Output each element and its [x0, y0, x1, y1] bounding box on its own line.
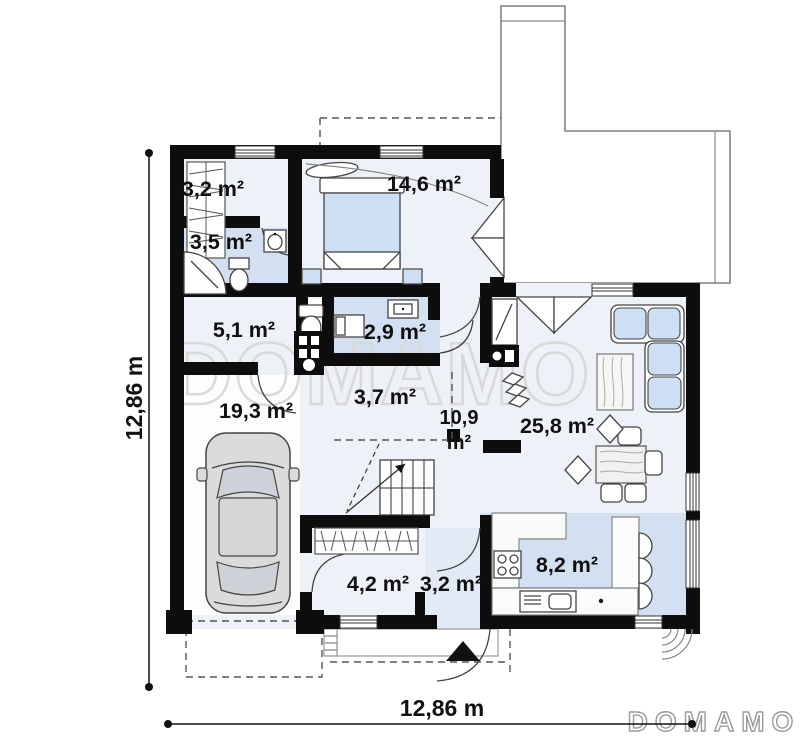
- nightstand-left: [302, 269, 321, 284]
- logo-text: DOMAMO: [628, 706, 800, 737]
- label-entry: 3,2 m²: [420, 572, 482, 596]
- dimension-left-label: 12,86 m: [121, 356, 147, 440]
- dimension-bottom: 12,86 m: [164, 695, 696, 728]
- car-roof: [219, 498, 277, 556]
- window-bottom-2: [635, 616, 662, 628]
- stove: [494, 551, 521, 578]
- sink-bathroom: [264, 230, 286, 252]
- toilet-bathroom: [229, 258, 249, 291]
- dimension-left: 12,86 m: [121, 149, 153, 691]
- car-mirror-left: [197, 468, 207, 481]
- label-bathroom: 3,5 m²: [190, 230, 252, 254]
- kitchen-bar: [612, 517, 639, 588]
- window-top-1: [235, 146, 275, 158]
- terrace-outline: [501, 6, 730, 283]
- label-living-room: 25,8 m²: [520, 414, 594, 438]
- label-wardrobe-bottom: 4,2 m²: [347, 572, 409, 596]
- window-top-2: [380, 146, 423, 158]
- kitchen-sink: [520, 591, 576, 612]
- label-kitchen: 8,2 m²: [536, 553, 598, 577]
- window-right-2: [686, 520, 699, 588]
- window-living-top: [592, 284, 633, 296]
- logo-watermark: DOMAMO: [628, 706, 800, 737]
- label-utility: 5,1 m²: [213, 318, 275, 342]
- label-garage: 19,3 m²: [219, 399, 293, 423]
- cabinet-handle: [599, 599, 603, 603]
- wardrobe-rail-bottom: [315, 528, 418, 554]
- dining-chair: [625, 484, 646, 502]
- dining-chair: [645, 451, 662, 475]
- floor-plan-drawing: DOMAMO: [0, 0, 800, 738]
- porch: [324, 629, 510, 677]
- label-bedroom: 14,6 m²: [387, 172, 461, 196]
- label-hallway-value: 10,9: [440, 407, 479, 429]
- rug: [597, 354, 633, 410]
- chimney-block: [294, 331, 324, 375]
- window-bottom-1: [340, 616, 377, 628]
- car-mirror-right: [289, 468, 299, 481]
- window-right-1: [686, 473, 699, 511]
- sink-wc: [388, 300, 418, 318]
- fireplace: [489, 299, 519, 367]
- floor-plan: DOMAMO: [0, 0, 800, 738]
- roof-overhang-dashed: [320, 118, 501, 146]
- car: [197, 433, 299, 613]
- label-wc: 2,9 m²: [364, 320, 426, 344]
- label-wardrobe-top: 3,2 m²: [182, 177, 244, 201]
- label-hallway-unit: m²: [447, 432, 472, 454]
- nightstand-right: [403, 269, 422, 284]
- washer-wc: [334, 315, 364, 337]
- dimension-bottom-label: 12,86 m: [400, 695, 484, 721]
- dining-chair: [601, 484, 622, 502]
- label-inner-hall: 3,7 m²: [354, 385, 416, 409]
